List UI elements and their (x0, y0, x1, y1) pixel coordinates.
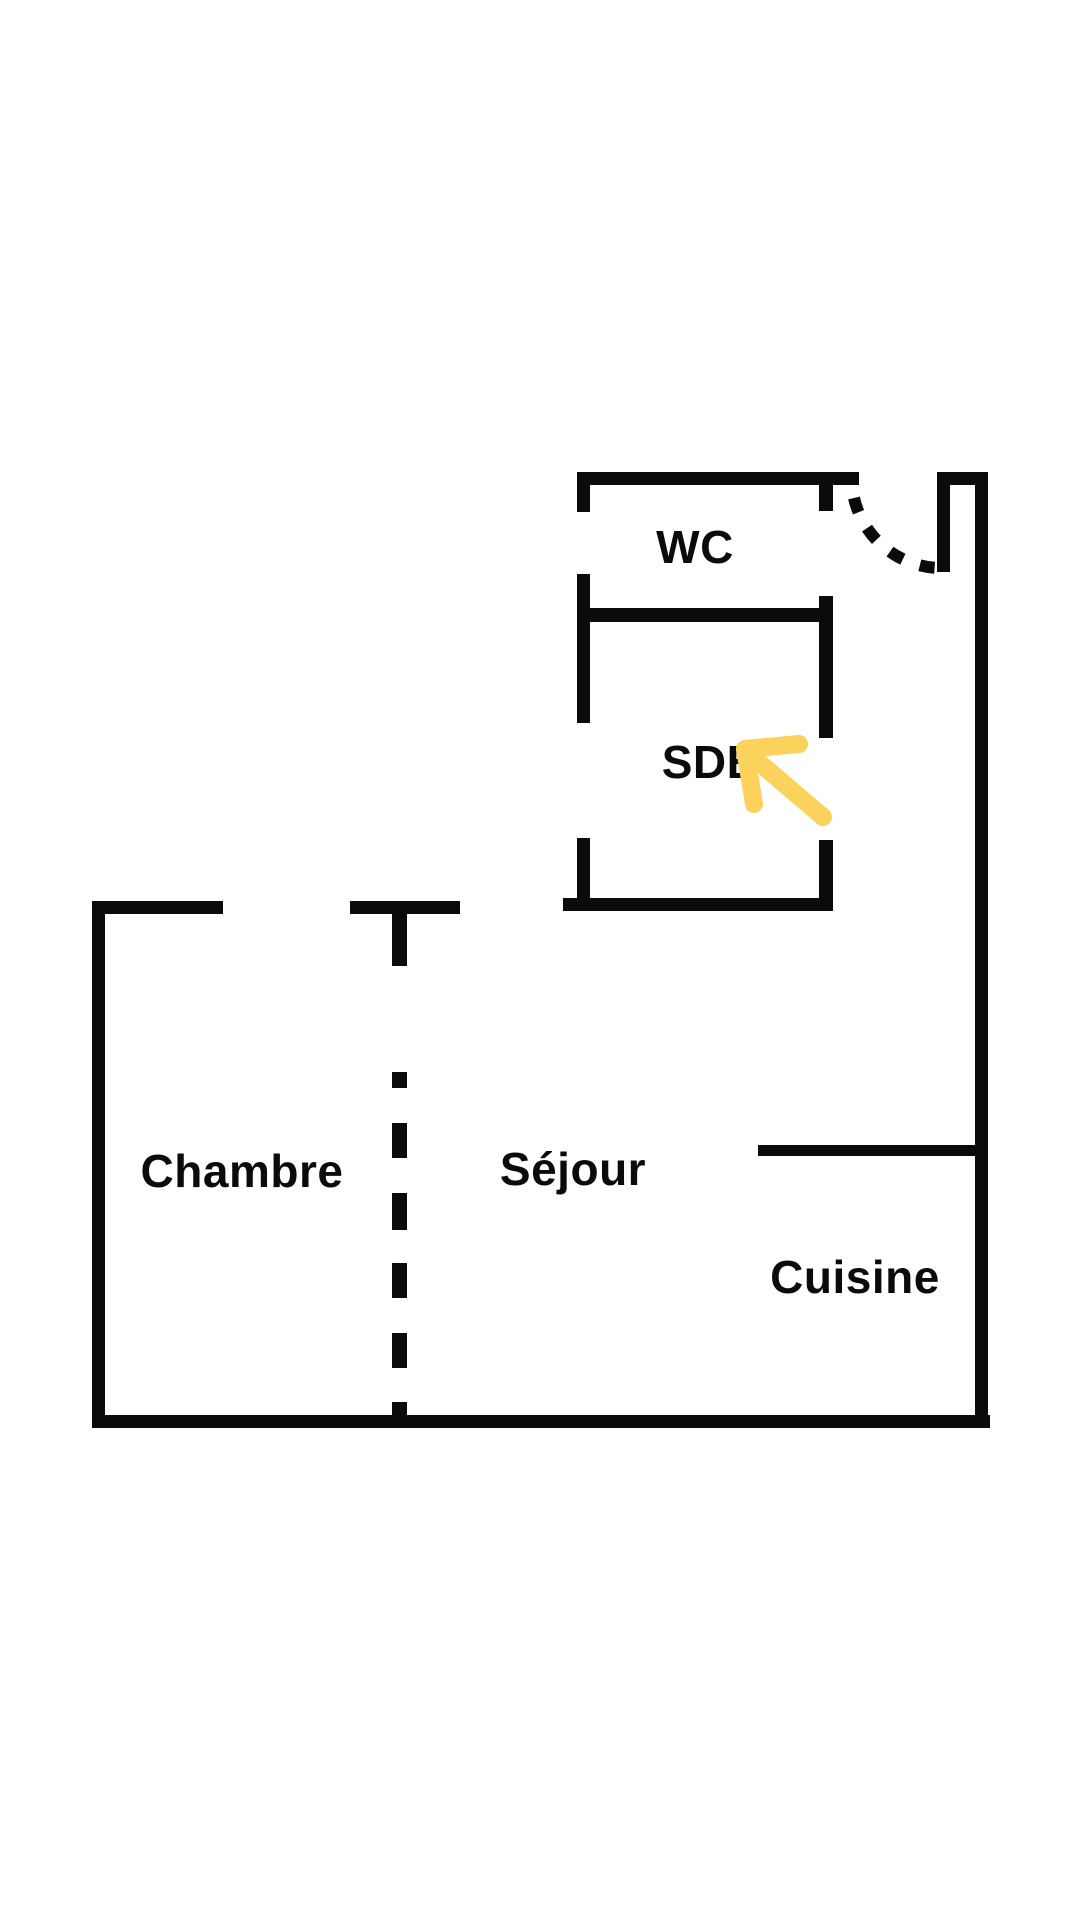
entry-door-swing-arc (854, 498, 940, 568)
highlight-arrow-barb-down (745, 749, 754, 804)
floor-plan: WC SDB Chambre Séjour Cuisine (0, 0, 1080, 1920)
annotation-overlay (0, 0, 1080, 1920)
highlight-arrow (745, 744, 823, 817)
